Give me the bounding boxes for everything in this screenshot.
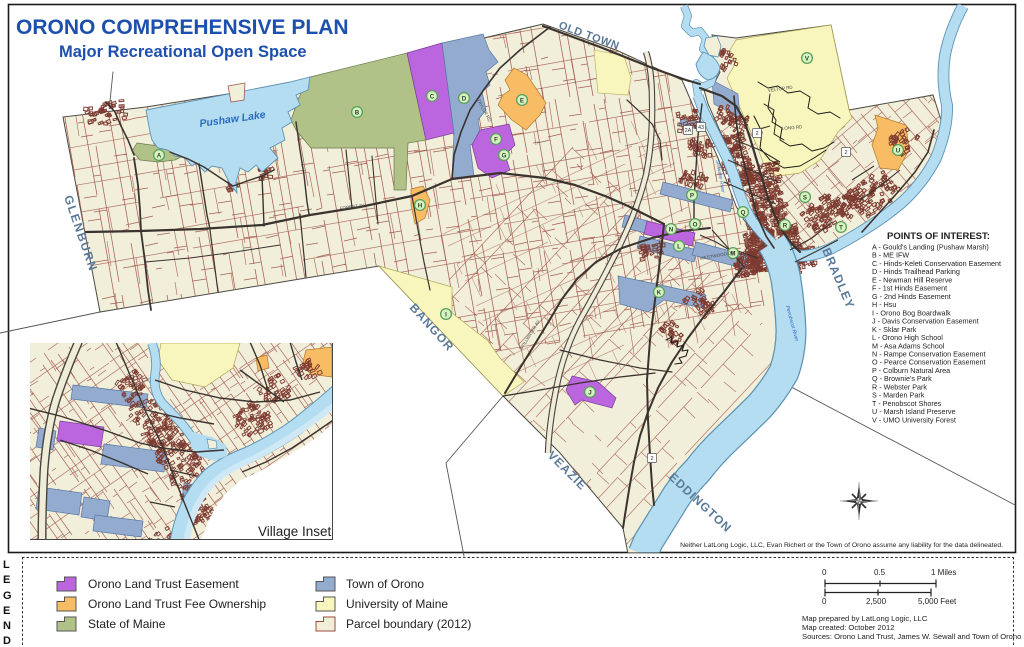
svg-text:G: G — [3, 590, 12, 602]
svg-text:U: U — [896, 147, 901, 154]
svg-text:E: E — [3, 574, 10, 586]
svg-text:University of Maine: University of Maine — [346, 597, 448, 611]
svg-text:Orono Land Trust Easement: Orono Land Trust Easement — [88, 577, 239, 591]
svg-text:0: 0 — [822, 568, 827, 577]
svg-text:ORONO COMPREHENSIVE PLAN: ORONO COMPREHENSIVE PLAN — [16, 16, 349, 39]
svg-text:P: P — [690, 192, 694, 199]
svg-text:N: N — [669, 226, 674, 233]
svg-text:2,500: 2,500 — [866, 597, 887, 606]
svg-text:43: 43 — [698, 125, 704, 131]
svg-text:I: I — [445, 311, 447, 318]
svg-text:0: 0 — [822, 597, 827, 606]
svg-text:2: 2 — [650, 456, 653, 462]
svg-text:2: 2 — [755, 131, 758, 137]
svg-text:K: K — [657, 289, 662, 296]
svg-text:Parcel boundary (2012): Parcel boundary (2012) — [346, 617, 471, 631]
svg-text:L: L — [677, 243, 681, 250]
svg-text:Village Inset: Village Inset — [258, 524, 332, 539]
svg-text:2A: 2A — [685, 128, 692, 134]
svg-text:Q: Q — [741, 209, 746, 216]
svg-text:R: R — [783, 222, 788, 229]
svg-text:0.5: 0.5 — [874, 568, 886, 577]
svg-text:H: H — [418, 202, 423, 209]
svg-text:E: E — [3, 605, 10, 617]
svg-text:L: L — [3, 559, 10, 571]
svg-text:Sources: Orono Land Trust, Ja: Sources: Orono Land Trust, James W. Sewa… — [802, 632, 1021, 641]
svg-text:Neither LatLong Logic, LLC, Ev: Neither LatLong Logic, LLC, Evan Richert… — [680, 542, 1003, 549]
svg-text:E: E — [520, 97, 524, 104]
svg-text:C: C — [430, 93, 435, 100]
svg-text:Map prepared by LatLong Logic,: Map prepared by LatLong Logic, LLC — [802, 614, 928, 623]
svg-text:S: S — [803, 194, 807, 201]
svg-text:J: J — [588, 389, 592, 396]
svg-text:Town of Orono: Town of Orono — [346, 577, 424, 591]
svg-text:G: G — [502, 152, 507, 159]
svg-text:T: T — [839, 224, 843, 231]
svg-text:D: D — [462, 95, 467, 102]
svg-text:B: B — [355, 109, 360, 116]
svg-text:D: D — [3, 635, 11, 647]
svg-text:F: F — [494, 136, 498, 143]
svg-text:N: N — [3, 620, 11, 632]
svg-text:POINTS OF INTEREST:: POINTS OF INTEREST: — [887, 231, 990, 242]
svg-text:5,000 Feet: 5,000 Feet — [918, 597, 957, 606]
svg-text:State of Maine: State of Maine — [88, 617, 166, 631]
svg-text:Major Recreational Open Space: Major Recreational Open Space — [59, 43, 307, 61]
svg-text:Orono Land Trust Fee Ownership: Orono Land Trust Fee Ownership — [88, 597, 266, 611]
svg-text:2: 2 — [844, 150, 847, 156]
svg-text:A: A — [157, 152, 162, 159]
svg-text:1 Miles: 1 Miles — [931, 568, 956, 577]
svg-text:V - UMO University Forest: V - UMO University Forest — [872, 415, 956, 424]
svg-text:O: O — [693, 221, 698, 228]
svg-text:Map created: October 2012: Map created: October 2012 — [802, 623, 894, 632]
